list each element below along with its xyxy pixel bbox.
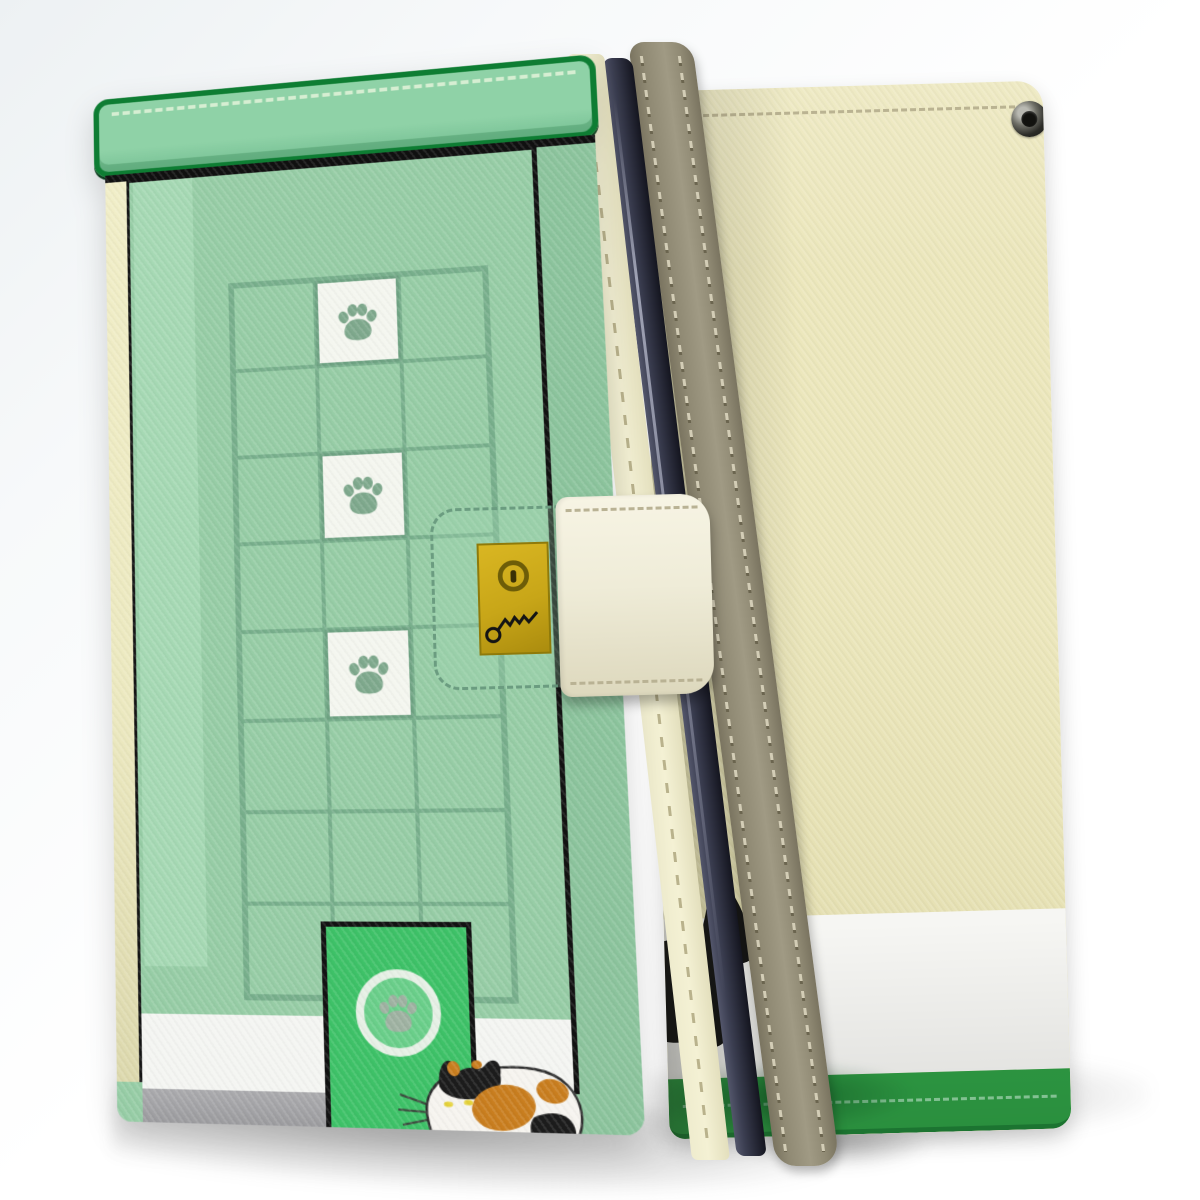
paw-tile [324, 627, 414, 720]
awning-stitch-line [112, 70, 576, 116]
grid-cell [414, 716, 507, 810]
paw-icon [343, 648, 395, 700]
grid-cell [238, 541, 325, 632]
grid-cell [330, 810, 421, 903]
clasp-strap [427, 493, 714, 701]
paw-icon [333, 295, 384, 346]
paw-tile [315, 275, 402, 366]
grid-cell [317, 362, 405, 454]
paw-icon [338, 469, 389, 521]
grid-cell [322, 537, 411, 629]
calico-cat-icon [408, 1032, 596, 1135]
keyhole-and-key-icon [479, 544, 550, 654]
grid-cell [244, 811, 332, 903]
grid-cell [232, 281, 317, 371]
gold-lock-plate [476, 542, 551, 656]
grid-cell [417, 809, 510, 903]
clasp-strap-end [555, 493, 715, 697]
product-photo-scene [0, 0, 1200, 1200]
grid-cell [327, 718, 417, 811]
grid-cell [402, 356, 492, 449]
grid-cell [236, 453, 322, 544]
grid-cell [242, 720, 330, 812]
paw-icon [374, 988, 423, 1038]
grid-cell [240, 630, 327, 722]
facade-highlight-band [133, 178, 208, 967]
paw-tile [319, 449, 407, 541]
grid-cell [234, 367, 319, 458]
grid-cell [399, 269, 488, 361]
